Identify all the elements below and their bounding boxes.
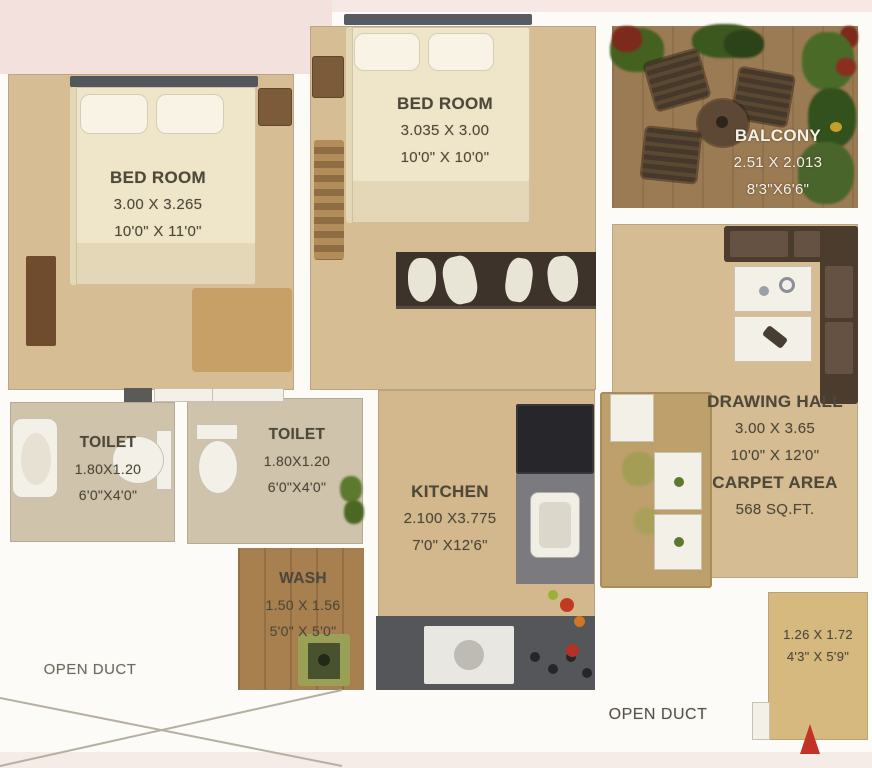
room-name: BED ROOM — [58, 164, 258, 191]
shelf — [154, 388, 218, 402]
room-name: BALCONY — [692, 122, 864, 149]
room-dim-ft: 8'3"X6'6" — [692, 176, 864, 203]
fridge — [516, 404, 594, 474]
label-kitchen: KITCHEN 2.100 X3.775 7'0" X12'6" — [358, 478, 542, 559]
label-open-duct-left: OPEN DUCT — [34, 660, 146, 680]
vegetable — [566, 644, 579, 657]
vegetable — [548, 590, 558, 600]
bed-headboard — [70, 76, 258, 87]
room-dim-ft: 4'3" X 5'9" — [764, 646, 872, 668]
clothes — [546, 255, 581, 304]
flower-red — [612, 26, 642, 52]
room-name: TOILET — [28, 430, 188, 456]
coffee-table — [734, 266, 812, 312]
pillow — [354, 33, 420, 71]
stove-knob — [582, 668, 592, 678]
label-bedroom-top: BED ROOM 3.035 X 3.00 10'0" X 10'0" — [345, 90, 545, 171]
sofa-cushion — [825, 322, 853, 374]
rug-striped — [314, 140, 344, 260]
plant — [724, 30, 764, 58]
stove-burner — [454, 640, 484, 670]
dining-chair — [610, 394, 654, 442]
shelf — [212, 388, 284, 402]
room-dim-m: 3.00 X 3.65 — [686, 415, 864, 442]
room-dim-ft: 10'0" X 11'0" — [58, 218, 258, 245]
room-dim-m: 1.80X1.20 — [217, 448, 377, 474]
room-dim-m: 3.035 X 3.00 — [345, 117, 545, 144]
clothes — [408, 258, 436, 302]
vegetable — [574, 616, 585, 627]
dresser — [26, 256, 56, 346]
room-name: BED ROOM — [345, 90, 545, 117]
pillow — [428, 33, 494, 71]
label-open-duct-right: OPEN DUCT — [594, 704, 722, 726]
label-toilet-right: TOILET 1.80X1.20 6'0"X4'0" — [217, 422, 377, 500]
pillow — [156, 94, 224, 134]
open-duct-text: OPEN DUCT — [34, 660, 146, 680]
stove-knob — [548, 664, 558, 674]
room-dim-m: 1.50 X 1.56 — [233, 592, 373, 618]
room-dim-ft: 6'0"X4'0" — [217, 474, 377, 500]
sofa-cushion — [730, 231, 788, 257]
open-duct-text: OPEN DUCT — [594, 704, 722, 726]
nightstand — [258, 88, 292, 126]
label-toilet-left: TOILET 1.80X1.20 6'0"X4'0" — [28, 430, 188, 508]
clothes — [439, 253, 480, 307]
carpet-area-label: CARPET AREA — [686, 469, 864, 496]
table-item — [762, 325, 788, 349]
entry-arrow-icon — [800, 724, 820, 754]
room-dim-ft: 7'0" X12'6" — [358, 532, 542, 559]
room-name: WASH — [233, 566, 373, 592]
rug-pattern — [622, 452, 656, 486]
clothes — [503, 256, 535, 303]
sofa — [820, 226, 858, 404]
washer-door — [318, 654, 330, 666]
room-dim-m: 2.100 X3.775 — [358, 505, 542, 532]
room-dim-ft: 6'0"X4'0" — [28, 482, 188, 508]
stove — [424, 626, 514, 684]
coffee-table — [734, 316, 812, 362]
stove-knob — [530, 652, 540, 662]
label-drawing-hall: DRAWING HALL 3.00 X 3.65 10'0" X 12'0" C… — [686, 388, 864, 523]
room-name: DRAWING HALL — [686, 388, 864, 415]
label-entry: 1.26 X 1.72 4'3" X 5'9" — [764, 624, 872, 668]
pillow — [80, 94, 148, 134]
room-name: TOILET — [217, 422, 377, 448]
wardrobe — [396, 252, 596, 309]
nightstand — [312, 56, 344, 98]
room-dim-m: 1.26 X 1.72 — [764, 624, 872, 646]
open-duct-lines — [0, 686, 344, 768]
table-plant — [674, 537, 684, 547]
room-dim-ft: 10'0" X 10'0" — [345, 144, 545, 171]
outside-area-top-left — [0, 0, 332, 74]
vent-window — [124, 388, 152, 402]
sink-basin — [539, 502, 571, 548]
floor-plan-canvas: BED ROOM 3.00 X 3.265 10'0" X 11'0" BED … — [0, 0, 872, 768]
room-dim-m: 3.00 X 3.265 — [58, 191, 258, 218]
room-dim-m: 1.80X1.20 — [28, 456, 188, 482]
vegetable — [560, 598, 574, 612]
room-name: KITCHEN — [358, 478, 542, 505]
label-wash: WASH 1.50 X 1.56 5'0" X 5'0" — [233, 566, 373, 644]
outside-strip-top — [332, 0, 872, 12]
table-plant — [674, 477, 684, 487]
entry-step — [752, 702, 770, 740]
table-item — [779, 277, 795, 293]
room-dim-m: 2.51 X 2.013 — [692, 149, 864, 176]
rug — [192, 288, 292, 372]
room-dim-ft: 5'0" X 5'0" — [233, 618, 373, 644]
flower-red — [836, 58, 856, 76]
label-balcony: BALCONY 2.51 X 2.013 8'3"X6'6" — [692, 122, 864, 203]
room-dim-ft: 10'0" X 12'0" — [686, 442, 864, 469]
table-item — [759, 286, 769, 296]
window-band — [344, 14, 532, 25]
carpet-area-value: 568 SQ.FT. — [686, 496, 864, 523]
label-bedroom-left: BED ROOM 3.00 X 3.265 10'0" X 11'0" — [58, 164, 258, 245]
sofa-cushion — [825, 266, 853, 318]
